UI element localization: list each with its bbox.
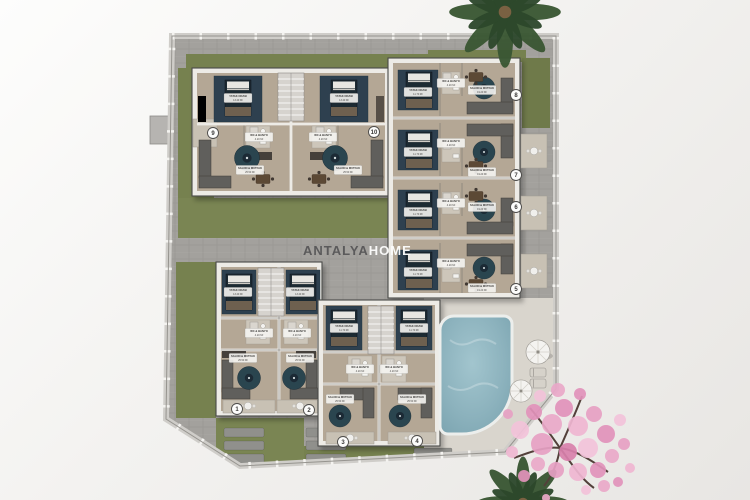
svg-text:WC & BANYO: WC & BANYO <box>288 329 306 333</box>
sofa <box>467 222 513 234</box>
room-label: SALON & MUTFAK19.20 M² <box>468 85 496 94</box>
svg-text:25.50 M²: 25.50 M² <box>343 171 353 174</box>
room-label: SALON & MUTFAK25.50 M² <box>326 394 354 403</box>
lawn-patch <box>176 262 216 418</box>
room-label: SALON & MUTFAK25.50 M² <box>236 165 264 174</box>
building-a <box>192 68 390 196</box>
area-rug <box>473 257 495 279</box>
svg-text:13.40 M²: 13.40 M² <box>233 99 243 102</box>
svg-text:25.50 M²: 25.50 M² <box>245 171 255 174</box>
room-label: WC & BANYO4.20 M² <box>309 132 337 141</box>
area-rug <box>283 367 306 390</box>
sofa <box>222 388 250 399</box>
room-label: WC & BANYO4.20 M² <box>245 132 273 141</box>
room-label: YATAK ODASI11.70 M² <box>400 323 428 332</box>
building-d <box>318 300 440 446</box>
svg-text:25.50 M²: 25.50 M² <box>407 400 417 403</box>
wardrobe <box>198 96 206 122</box>
svg-text:4.20 M²: 4.20 M² <box>447 204 456 207</box>
unit-marker: 6 <box>511 202 522 213</box>
sofa <box>306 360 317 392</box>
room-label: SALON & MUTFAK19.20 M² <box>468 167 496 176</box>
room-label: WC & BANYO4.20 M² <box>380 364 408 373</box>
room-label: WC & BANYO4.20 M² <box>437 198 465 207</box>
room-label: SALON & MUTFAK19.20 M² <box>468 283 496 292</box>
room-label: YATAK ODASI11.70 M² <box>404 87 432 96</box>
area-rug <box>329 405 351 427</box>
svg-text:YATAK ODASI: YATAK ODASI <box>409 88 427 92</box>
room-label: WC & BANYO4.20 M² <box>437 258 465 267</box>
svg-text:25.50 M²: 25.50 M² <box>238 359 248 362</box>
unit-marker: 2 <box>304 405 315 416</box>
svg-text:4.20 M²: 4.20 M² <box>447 264 456 267</box>
svg-text:SALON & MUTFAK: SALON & MUTFAK <box>336 166 360 170</box>
svg-text:11.70 M²: 11.70 M² <box>339 329 349 332</box>
svg-text:YATAK ODASI: YATAK ODASI <box>291 288 309 292</box>
svg-text:SALON & MUTFAK: SALON & MUTFAK <box>238 166 262 170</box>
unit-marker: 10 <box>369 127 380 138</box>
room-label: SALON & MUTFAK25.50 M² <box>229 353 257 362</box>
svg-text:YATAK ODASI: YATAK ODASI <box>335 324 353 328</box>
svg-text:13.40 M²: 13.40 M² <box>295 293 305 296</box>
svg-text:19.20 M²: 19.20 M² <box>477 173 487 176</box>
lawn-patch <box>522 58 550 128</box>
sofa <box>467 244 513 256</box>
unit-marker: 3 <box>338 437 349 448</box>
sofa <box>363 388 374 418</box>
sofa <box>199 140 211 178</box>
room-label: SALON & MUTFAK25.50 M² <box>398 394 426 403</box>
room-label: YATAK ODASI11.70 M² <box>404 267 432 276</box>
room-label: YATAK ODASI11.70 M² <box>330 323 358 332</box>
lawn-patch <box>178 198 390 238</box>
svg-text:WC & BANYO: WC & BANYO <box>442 139 460 143</box>
svg-text:SALON & MUTFAK: SALON & MUTFAK <box>470 86 494 90</box>
svg-text:SALON & MUTFAK: SALON & MUTFAK <box>231 354 255 358</box>
wardrobe <box>376 96 384 122</box>
svg-text:WC & BANYO: WC & BANYO <box>385 365 403 369</box>
svg-text:13.40 M²: 13.40 M² <box>339 99 349 102</box>
room-label: YATAK ODASI13.40 M² <box>286 287 314 296</box>
svg-text:SALON & MUTFAK: SALON & MUTFAK <box>288 354 312 358</box>
unit-marker: 8 <box>511 90 522 101</box>
svg-text:4.20 M²: 4.20 M² <box>390 370 399 373</box>
pool-umbrella <box>510 380 532 402</box>
svg-text:WC & BANYO: WC & BANYO <box>250 133 268 137</box>
sofa <box>467 102 513 114</box>
svg-text:SALON & MUTFAK: SALON & MUTFAK <box>328 395 352 399</box>
unit-marker: 1 <box>232 404 243 415</box>
room-label: WC & BANYO4.20 M² <box>346 364 374 373</box>
svg-text:4.20 M²: 4.20 M² <box>319 138 328 141</box>
sofa <box>199 176 231 188</box>
svg-text:25.50 M²: 25.50 M² <box>335 400 345 403</box>
room-label: WC & BANYO4.20 M² <box>283 328 311 337</box>
svg-text:25.50 M²: 25.50 M² <box>295 359 305 362</box>
svg-text:11.70 M²: 11.70 M² <box>413 273 423 276</box>
svg-text:WC & BANYO: WC & BANYO <box>442 199 460 203</box>
svg-text:10: 10 <box>371 130 378 136</box>
svg-text:19.20 M²: 19.20 M² <box>477 208 487 211</box>
sun-lounger <box>530 368 546 377</box>
svg-text:4.20 M²: 4.20 M² <box>255 334 264 337</box>
room-label: YATAK ODASI13.40 M² <box>224 93 252 102</box>
sofa <box>467 124 513 136</box>
sofa <box>222 360 233 392</box>
pool-umbrella <box>526 340 550 364</box>
sofa <box>371 140 383 178</box>
room-label: WC & BANYO4.20 M² <box>245 328 273 337</box>
svg-text:WC & BANYO: WC & BANYO <box>250 329 268 333</box>
svg-text:YATAK ODASI: YATAK ODASI <box>405 324 423 328</box>
svg-text:4.20 M²: 4.20 M² <box>447 144 456 147</box>
sofa <box>351 176 383 188</box>
svg-text:WC & BANYO: WC & BANYO <box>351 365 369 369</box>
unit-marker: 9 <box>208 128 219 139</box>
watermark: ANTALYAHOME <box>303 243 412 258</box>
svg-text:4.20 M²: 4.20 M² <box>293 334 302 337</box>
unit-marker: 7 <box>511 170 522 181</box>
svg-text:YATAK ODASI: YATAK ODASI <box>229 288 247 292</box>
svg-text:WC & BANYO: WC & BANYO <box>442 79 460 83</box>
pool-water <box>440 316 512 434</box>
room-label: SALON & MUTFAK25.50 M² <box>334 165 362 174</box>
svg-text:19.20 M²: 19.20 M² <box>477 289 487 292</box>
svg-text:YATAK ODASI: YATAK ODASI <box>409 208 427 212</box>
room-label: WC & BANYO4.20 M² <box>437 138 465 147</box>
building-b-terraces <box>521 134 547 288</box>
svg-text:SALON & MUTFAK: SALON & MUTFAK <box>470 284 494 288</box>
svg-text:YATAK ODASI: YATAK ODASI <box>409 148 427 152</box>
svg-text:13.40 M²: 13.40 M² <box>233 293 243 296</box>
room-label: SALON & MUTFAK19.20 M² <box>468 202 496 211</box>
svg-text:SALON & MUTFAK: SALON & MUTFAK <box>470 203 494 207</box>
svg-text:WC & BANYO: WC & BANYO <box>442 259 460 263</box>
svg-text:SALON & MUTFAK: SALON & MUTFAK <box>400 395 424 399</box>
svg-text:4.20 M²: 4.20 M² <box>447 84 456 87</box>
svg-text:11.70 M²: 11.70 M² <box>409 329 419 332</box>
svg-text:4.20 M²: 4.20 M² <box>255 138 264 141</box>
svg-text:4.20 M²: 4.20 M² <box>356 370 365 373</box>
staircase <box>368 306 394 354</box>
unit-marker: 5 <box>511 284 522 295</box>
svg-text:YATAK ODASI: YATAK ODASI <box>335 94 353 98</box>
watermark-antalya: ANTALYA <box>303 243 369 258</box>
room-label: WC & BANYO4.20 M² <box>437 78 465 87</box>
svg-text:11.70 M²: 11.70 M² <box>413 153 423 156</box>
watermark-home: HOME <box>369 243 412 258</box>
swimming-pool <box>440 316 512 434</box>
room-label: YATAK ODASI11.70 M² <box>404 147 432 156</box>
svg-text:SALON & MUTFAK: SALON & MUTFAK <box>470 168 494 172</box>
svg-text:11.70 M²: 11.70 M² <box>413 93 423 96</box>
room-label: YATAK ODASI11.70 M² <box>404 207 432 216</box>
room-label: YATAK ODASI13.40 M² <box>224 287 252 296</box>
building-c <box>216 262 322 416</box>
area-rug <box>389 405 411 427</box>
site-plan-rendering: YATAK ODASI13.40 M²YATAK ODASI13.40 M²WC… <box>0 0 750 500</box>
staircase <box>258 268 284 316</box>
svg-text:WC & BANYO: WC & BANYO <box>314 133 332 137</box>
svg-text:19.20 M²: 19.20 M² <box>477 91 487 94</box>
svg-text:YATAK ODASI: YATAK ODASI <box>229 94 247 98</box>
unit-marker: 4 <box>412 436 423 447</box>
area-rug <box>238 367 261 390</box>
sun-lounger <box>530 379 546 388</box>
staircase <box>278 73 304 121</box>
svg-text:YATAK ODASI: YATAK ODASI <box>409 268 427 272</box>
svg-text:11.70 M²: 11.70 M² <box>413 213 423 216</box>
room-label: SALON & MUTFAK25.50 M² <box>286 353 314 362</box>
room-label: YATAK ODASI13.40 M² <box>330 93 358 102</box>
